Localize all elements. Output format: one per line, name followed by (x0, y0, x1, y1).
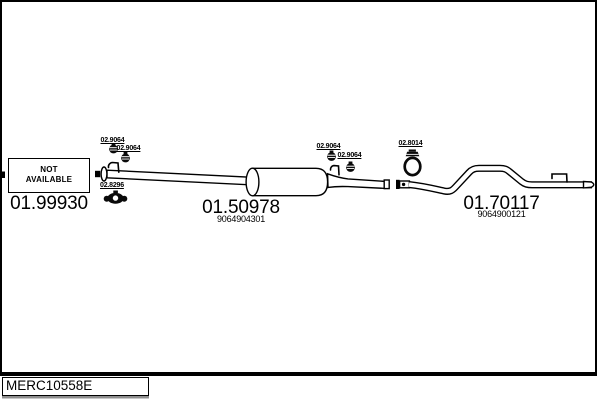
drawing-code: MERC10558E (6, 378, 92, 393)
silencer-end-cap (246, 168, 259, 196)
mount-bracket-icon[interactable] (104, 191, 128, 204)
not-available-box: NOT AVAILABLE (8, 158, 90, 193)
left-mount-code[interactable]: 02.8296 (100, 182, 124, 190)
clamp-icon[interactable] (327, 151, 336, 161)
middle-oe-reference: 9064904301 (196, 214, 286, 224)
left-clamp-bottom-code[interactable]: 02.9064 (117, 145, 141, 153)
mid-clamp-bottom-code[interactable]: 02.9064 (338, 152, 362, 160)
tail-pipe-tip (584, 182, 594, 188)
clamp-icon[interactable] (121, 152, 130, 162)
frame-connection-tick (0, 172, 5, 179)
front-flange (101, 167, 107, 181)
front-part-number[interactable]: 01.99930 (5, 194, 93, 213)
not-available-line2: AVAILABLE (9, 175, 89, 185)
middle-silencer-drawing (246, 166, 389, 196)
clamp-icon[interactable] (346, 162, 355, 172)
silencer-body (253, 168, 328, 195)
sleeve-joint-nut (402, 183, 405, 186)
drawing-code-box: MERC10558E (2, 377, 149, 396)
left-clamp-top-code[interactable]: 02.9064 (101, 137, 125, 145)
ring-hanger-icon[interactable] (405, 150, 421, 176)
rear-hanger-code[interactable]: 02.8014 (399, 140, 423, 148)
flange-bolt (95, 171, 100, 177)
tail-pipe-drawing (396, 168, 594, 191)
not-available-line1: NOT (9, 165, 89, 175)
pipe-hanger-hook (330, 166, 339, 175)
rear-oe-reference: 9064900121 (454, 209, 549, 219)
mid-clamp-top-code[interactable]: 02.9064 (317, 143, 341, 151)
silencer-outlet-pipe (328, 174, 385, 189)
exhaust-diagram-page: NOT AVAILABLE 01.99930 01.50978 90649043… (0, 0, 600, 400)
outlet-pipe-end (384, 180, 389, 189)
pipe-hanger-hook (552, 174, 567, 182)
front-pipe (107, 170, 250, 185)
